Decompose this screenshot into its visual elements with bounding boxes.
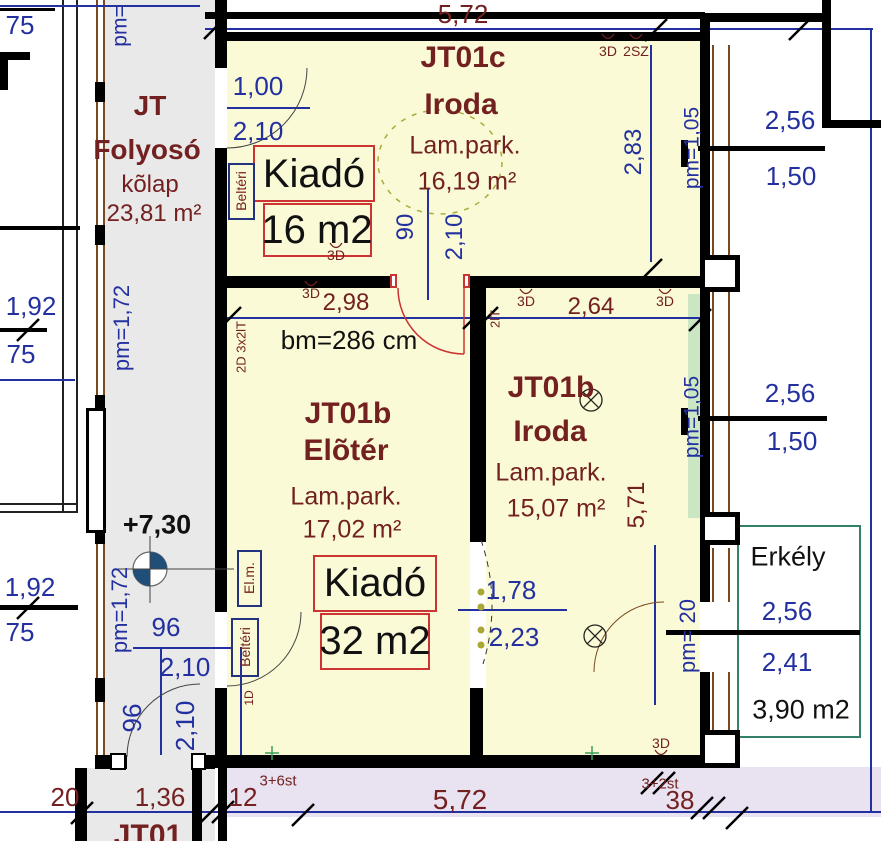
- room-floor-corridor: kõlap: [121, 173, 178, 197]
- dim-line: [0, 379, 75, 381]
- dim-label: 12: [229, 784, 258, 810]
- tag-3d: 3D: [652, 736, 670, 750]
- dim-label: 1,92: [5, 574, 56, 600]
- wall-corridor-right: [215, 0, 227, 68]
- tag-stair-up: 3+6st: [259, 774, 296, 789]
- wall-bottom: [227, 755, 710, 768]
- wall: [822, 0, 831, 128]
- pillar: [700, 512, 740, 545]
- dim-bar: [0, 226, 80, 230]
- dim-label: 96: [119, 704, 145, 733]
- dim-label: 75: [6, 12, 35, 38]
- room-area-office-c: 16,19 m²: [418, 170, 517, 195]
- dim-line: [215, 317, 710, 319]
- dim-label: 2,56: [765, 380, 816, 406]
- dim-label: 1,50: [767, 428, 818, 454]
- window-right-2: [712, 292, 730, 512]
- dim-bar: [0, 605, 78, 610]
- room-label-hall: JT01b: [305, 399, 392, 429]
- pillar: [700, 730, 740, 768]
- balcony-title: Erkély: [750, 544, 825, 571]
- balcony-depth: 2,41: [762, 649, 813, 675]
- dim-label: 2,83: [622, 129, 646, 176]
- dim-label: 1,36: [135, 784, 186, 810]
- dim-label: 2,10: [443, 214, 467, 261]
- dim-bar: [698, 416, 827, 421]
- dim-label: pm=1,72: [109, 567, 131, 653]
- wall: [700, 13, 830, 22]
- dim-line: [227, 107, 310, 109]
- neighbour-line: [62, 0, 64, 513]
- door-jamb: [191, 753, 206, 770]
- room-floor-office-c: Lam.park.: [409, 134, 520, 159]
- tag-elm: El.m.: [242, 562, 256, 594]
- room-label-corridor: JT: [134, 92, 167, 120]
- dim-label: 96: [152, 614, 181, 640]
- level-value: +7,30: [123, 512, 191, 539]
- window-right-3: [712, 548, 730, 602]
- wall-corner: [0, 52, 8, 90]
- dim-line: [427, 188, 429, 300]
- wall-corridor-left: [95, 678, 105, 702]
- tag-3d: 3D: [517, 294, 535, 308]
- dim-label: 2,10: [233, 118, 284, 144]
- tag-2sz: 2SZ: [623, 44, 649, 58]
- dim-line: [205, 28, 873, 30]
- dim-line: [870, 29, 872, 813]
- window-right-4: [712, 672, 730, 732]
- dim-label: pm=: [110, 5, 131, 46]
- room-label-corridor: Folyosó: [93, 136, 200, 164]
- dim-label: 1,78: [486, 577, 537, 603]
- tag-3d: 3D: [656, 294, 674, 308]
- dim-line: [133, 647, 233, 649]
- wall-corridor-left: [95, 395, 105, 409]
- room-floor-hall: Lam.park.: [290, 485, 401, 510]
- room-label-office-b: JT01b: [508, 373, 595, 403]
- rent-label-16: Kiadó: [263, 154, 365, 194]
- tag-2d3x2lt: 2D 3x2lT: [235, 321, 248, 373]
- wall-corridor-right: [215, 148, 227, 612]
- dim-label: 75: [7, 341, 36, 367]
- dim-label: 38: [666, 787, 695, 813]
- wall-mid: [466, 276, 700, 288]
- door-jamb-red: [390, 274, 397, 288]
- dim-line: [650, 45, 652, 262]
- dim-label: 1,50: [766, 163, 817, 189]
- dim-label: pm=1,05: [682, 376, 703, 458]
- wall-lower: [192, 768, 202, 841]
- tag-3d: 3D: [599, 44, 617, 58]
- tag-2lt: 2lT: [489, 310, 502, 328]
- dim-label: pm=1,05: [682, 107, 703, 189]
- wall: [822, 120, 881, 128]
- neighbour-line: [0, 511, 77, 513]
- room-label-hall: Elõtér: [303, 436, 388, 466]
- dim-label: pm= 20: [677, 599, 699, 673]
- dim-line: [0, 5, 200, 7]
- wall: [227, 32, 700, 41]
- room-label-jt01-partial: JT01: [114, 821, 182, 841]
- dim-label: 2,10: [160, 654, 211, 680]
- floor-plan: 75 pm= 1,00 2,10 2,83 pm=1,05 90 2,10 2,…: [0, 0, 881, 841]
- rent-area-32: 32 m2: [319, 621, 430, 661]
- dim-label: 90: [394, 214, 418, 241]
- clearance-note: bm=286 cm: [281, 327, 418, 353]
- dim-line: [458, 609, 567, 611]
- dim-label: 2,98: [323, 291, 370, 315]
- room-floor-office-b: Lam.park.: [495, 461, 606, 486]
- neighbour-line: [76, 0, 78, 513]
- dim-label-top-width: 5,72: [438, 1, 489, 27]
- dim-label: 75: [6, 619, 35, 645]
- dim-label: 2,23: [489, 624, 540, 650]
- room-label-office-b: Iroda: [513, 417, 586, 447]
- room-label-office-c: Iroda: [424, 90, 497, 120]
- dim-label: 5,71: [625, 482, 649, 529]
- dim-bar: [698, 146, 825, 151]
- neighbour-line: [0, 503, 77, 505]
- tag-3d: 3D: [302, 286, 320, 300]
- door-jamb-red: [463, 274, 470, 288]
- window-box-left: [86, 408, 106, 533]
- balcony-area: 3,90 m2: [752, 697, 850, 724]
- rent-area-16: 16 m2: [261, 210, 372, 250]
- tag-1d: 1D: [243, 690, 255, 705]
- dim-label: 5,72: [433, 786, 488, 814]
- wall-divider: [470, 288, 486, 542]
- bottom-strip-floor: [227, 767, 881, 817]
- dim-label: 1,92: [6, 293, 57, 319]
- room-divider-gap: [470, 542, 486, 688]
- dim-label: 20: [51, 784, 80, 810]
- wall-corridor-left: [95, 82, 105, 102]
- tag-belteri: Beltéri: [238, 627, 252, 667]
- wall-corridor-right: [215, 688, 227, 768]
- room-area-office-b: 15,07 m²: [507, 497, 606, 522]
- dim-label: 2,64: [568, 295, 615, 319]
- dim-label: 2,10: [172, 701, 198, 752]
- wall-divider: [470, 688, 483, 757]
- dim-bar: [0, 328, 47, 332]
- room-label-office-c: JT01c: [420, 43, 505, 73]
- window-corridor-left: [96, 0, 105, 755]
- wall-lower: [218, 768, 227, 841]
- room-area-hall: 17,02 m²: [303, 518, 402, 543]
- dim-line: [654, 545, 656, 705]
- wall-corridor-left: [95, 225, 105, 245]
- dim-label: 1,00: [233, 73, 284, 99]
- balcony-width: 2,56: [762, 598, 813, 624]
- rent-label-32: Kiadó: [324, 563, 426, 603]
- dim-label: 2,56: [765, 107, 816, 133]
- room-area-corridor: 23,81 m²: [107, 202, 202, 226]
- dim-label: pm=1,72: [111, 285, 133, 371]
- door-jamb: [110, 753, 126, 770]
- tag-belteri: Beltéri: [234, 171, 248, 211]
- pillar: [700, 255, 740, 292]
